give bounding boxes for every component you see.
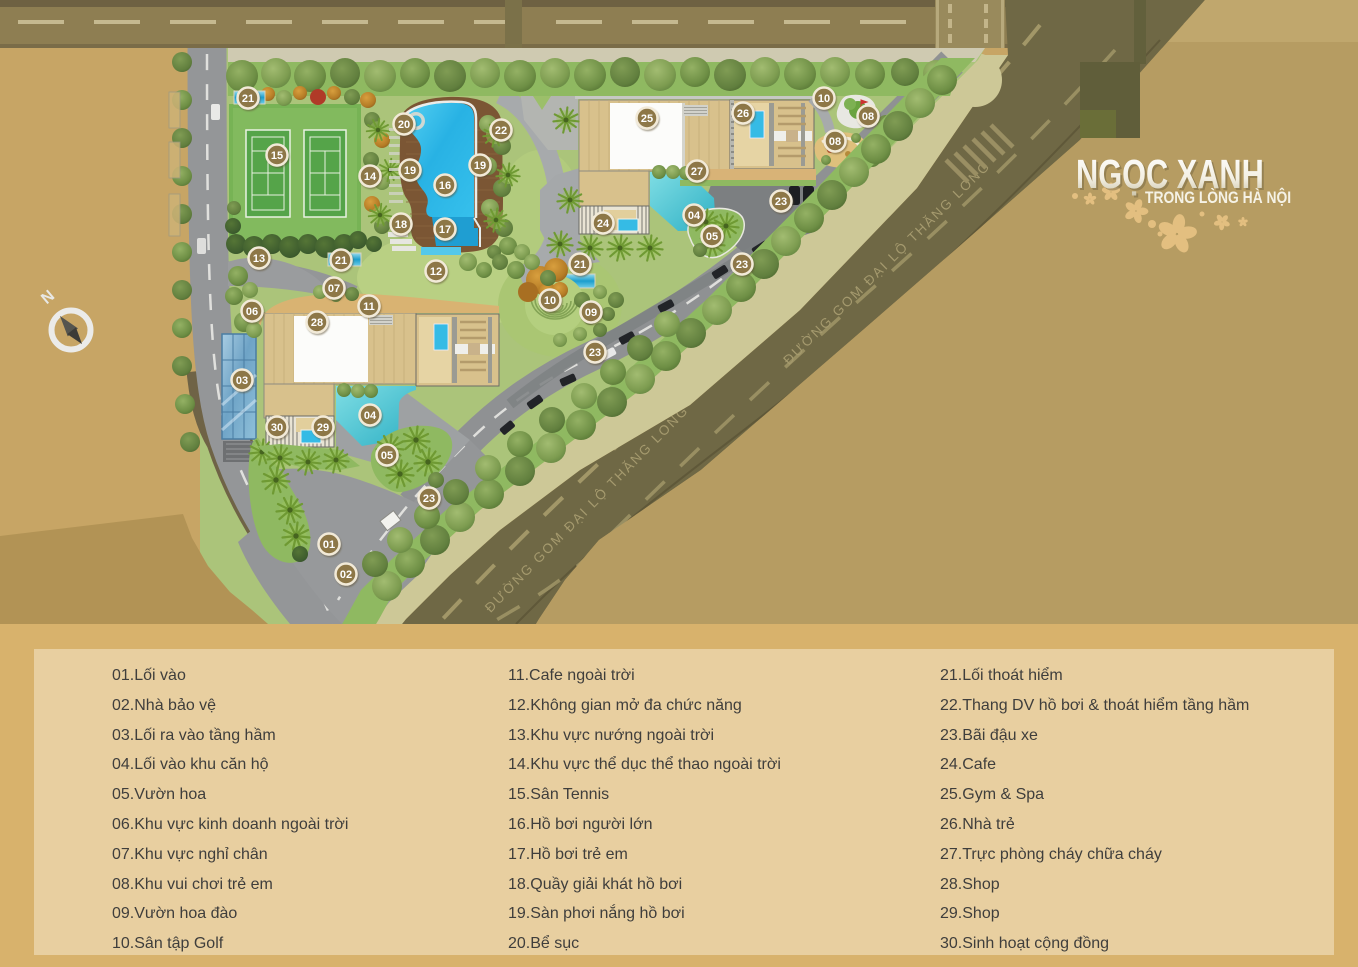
svg-text:09: 09 xyxy=(585,307,597,319)
svg-text:03: 03 xyxy=(236,375,248,387)
svg-text:23: 23 xyxy=(589,347,601,359)
svg-text:10: 10 xyxy=(818,93,830,105)
svg-text:19: 19 xyxy=(474,160,486,172)
svg-text:13: 13 xyxy=(253,253,265,265)
svg-text:21: 21 xyxy=(335,255,347,267)
svg-text:04: 04 xyxy=(688,210,701,222)
svg-text:05: 05 xyxy=(381,450,393,462)
svg-text:06: 06 xyxy=(246,306,258,318)
svg-text:25: 25 xyxy=(641,113,653,125)
svg-text:18: 18 xyxy=(395,219,407,231)
svg-text:02: 02 xyxy=(340,569,352,581)
svg-text:14: 14 xyxy=(364,171,377,183)
svg-text:20: 20 xyxy=(398,119,410,131)
svg-text:04: 04 xyxy=(364,410,377,422)
svg-text:08: 08 xyxy=(862,111,874,123)
svg-text:11: 11 xyxy=(363,301,375,313)
svg-text:23: 23 xyxy=(775,196,787,208)
svg-text:05: 05 xyxy=(706,231,718,243)
svg-text:23: 23 xyxy=(423,493,435,505)
svg-text:29: 29 xyxy=(317,422,329,434)
svg-text:08: 08 xyxy=(829,136,841,148)
svg-text:17: 17 xyxy=(439,224,451,236)
svg-text:10: 10 xyxy=(544,295,556,307)
svg-text:23: 23 xyxy=(736,259,748,271)
svg-text:21: 21 xyxy=(574,259,586,271)
svg-text:26: 26 xyxy=(737,108,749,120)
svg-text:22: 22 xyxy=(495,125,507,137)
svg-text:07: 07 xyxy=(328,283,340,295)
svg-text:15: 15 xyxy=(271,150,283,162)
svg-text:16: 16 xyxy=(439,180,451,192)
svg-text:12: 12 xyxy=(430,266,442,278)
svg-text:27: 27 xyxy=(691,166,703,178)
svg-text:24: 24 xyxy=(597,218,610,230)
svg-text:21: 21 xyxy=(242,93,254,105)
svg-text:TRONG LÒNG HÀ NỘI: TRONG LÒNG HÀ NỘI xyxy=(1145,188,1291,207)
svg-text:30: 30 xyxy=(271,422,283,434)
svg-text:28: 28 xyxy=(311,317,323,329)
svg-text:01: 01 xyxy=(323,539,335,551)
svg-text:19: 19 xyxy=(404,165,416,177)
